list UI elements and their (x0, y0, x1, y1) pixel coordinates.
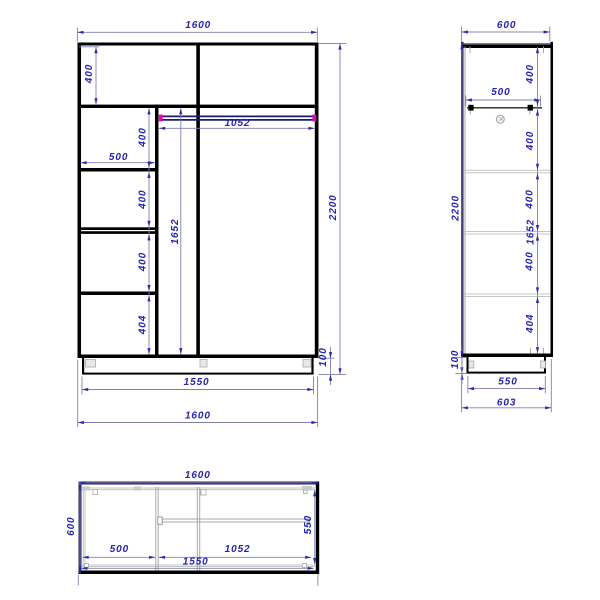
svg-text:1550: 1550 (183, 556, 209, 567)
svg-text:1652: 1652 (525, 219, 536, 245)
svg-text:500: 500 (110, 544, 129, 555)
svg-text:500: 500 (109, 152, 128, 163)
svg-text:400: 400 (524, 251, 535, 271)
svg-text:1052: 1052 (225, 118, 251, 129)
svg-text:400: 400 (525, 131, 536, 151)
svg-text:1652: 1652 (170, 219, 181, 245)
svg-text:404: 404 (525, 314, 536, 334)
svg-text:603: 603 (497, 397, 516, 408)
svg-text:1550: 1550 (184, 377, 210, 388)
svg-text:600: 600 (497, 20, 516, 31)
svg-text:400: 400 (525, 64, 536, 84)
svg-text:100: 100 (318, 347, 329, 366)
svg-text:1052: 1052 (225, 544, 251, 555)
svg-text:1600: 1600 (185, 470, 211, 481)
svg-text:404: 404 (138, 315, 149, 335)
svg-text:100: 100 (450, 350, 461, 369)
svg-text:1600: 1600 (185, 410, 211, 421)
svg-text:400: 400 (84, 64, 95, 84)
svg-text:550: 550 (498, 377, 517, 388)
svg-text:1600: 1600 (185, 20, 211, 31)
svg-text:550: 550 (303, 515, 314, 534)
svg-text:400: 400 (138, 252, 149, 272)
svg-text:2200: 2200 (451, 195, 462, 222)
svg-text:2200: 2200 (328, 194, 339, 221)
svg-text:400: 400 (138, 190, 149, 210)
svg-text:500: 500 (491, 87, 510, 98)
svg-text:600: 600 (66, 517, 77, 536)
svg-text:400: 400 (524, 189, 535, 209)
svg-text:400: 400 (138, 127, 149, 147)
